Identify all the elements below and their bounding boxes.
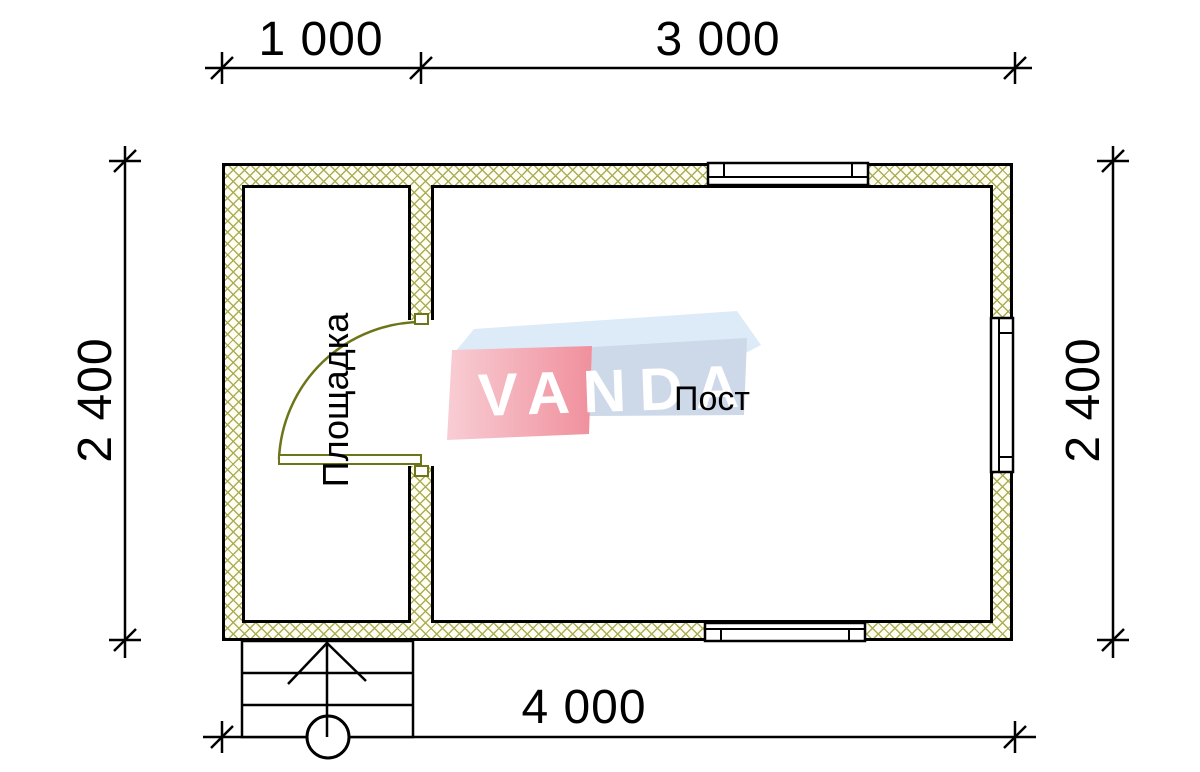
floor-plan-canvas: VANDA 1 000 3 000 4 000 2 400 2 400 Площ…: [0, 0, 1200, 772]
entrance-stairs: [242, 641, 413, 758]
window-right: [991, 318, 1013, 472]
dim-bottom-total: 4 000: [521, 684, 646, 732]
door-jamb-bottom: [415, 466, 428, 476]
window-top: [708, 163, 868, 185]
dim-top-segment-2: 3 000: [655, 16, 780, 64]
dim-left-height: 2 400: [72, 337, 120, 462]
door-jamb-top: [415, 314, 428, 324]
room-label-ploshadka: Площадка: [318, 313, 354, 488]
room-label-post: Пост: [674, 382, 750, 416]
dim-top-segment-1: 1 000: [258, 16, 383, 64]
window-bottom: [705, 623, 865, 641]
dim-right-height: 2 400: [1060, 337, 1108, 462]
